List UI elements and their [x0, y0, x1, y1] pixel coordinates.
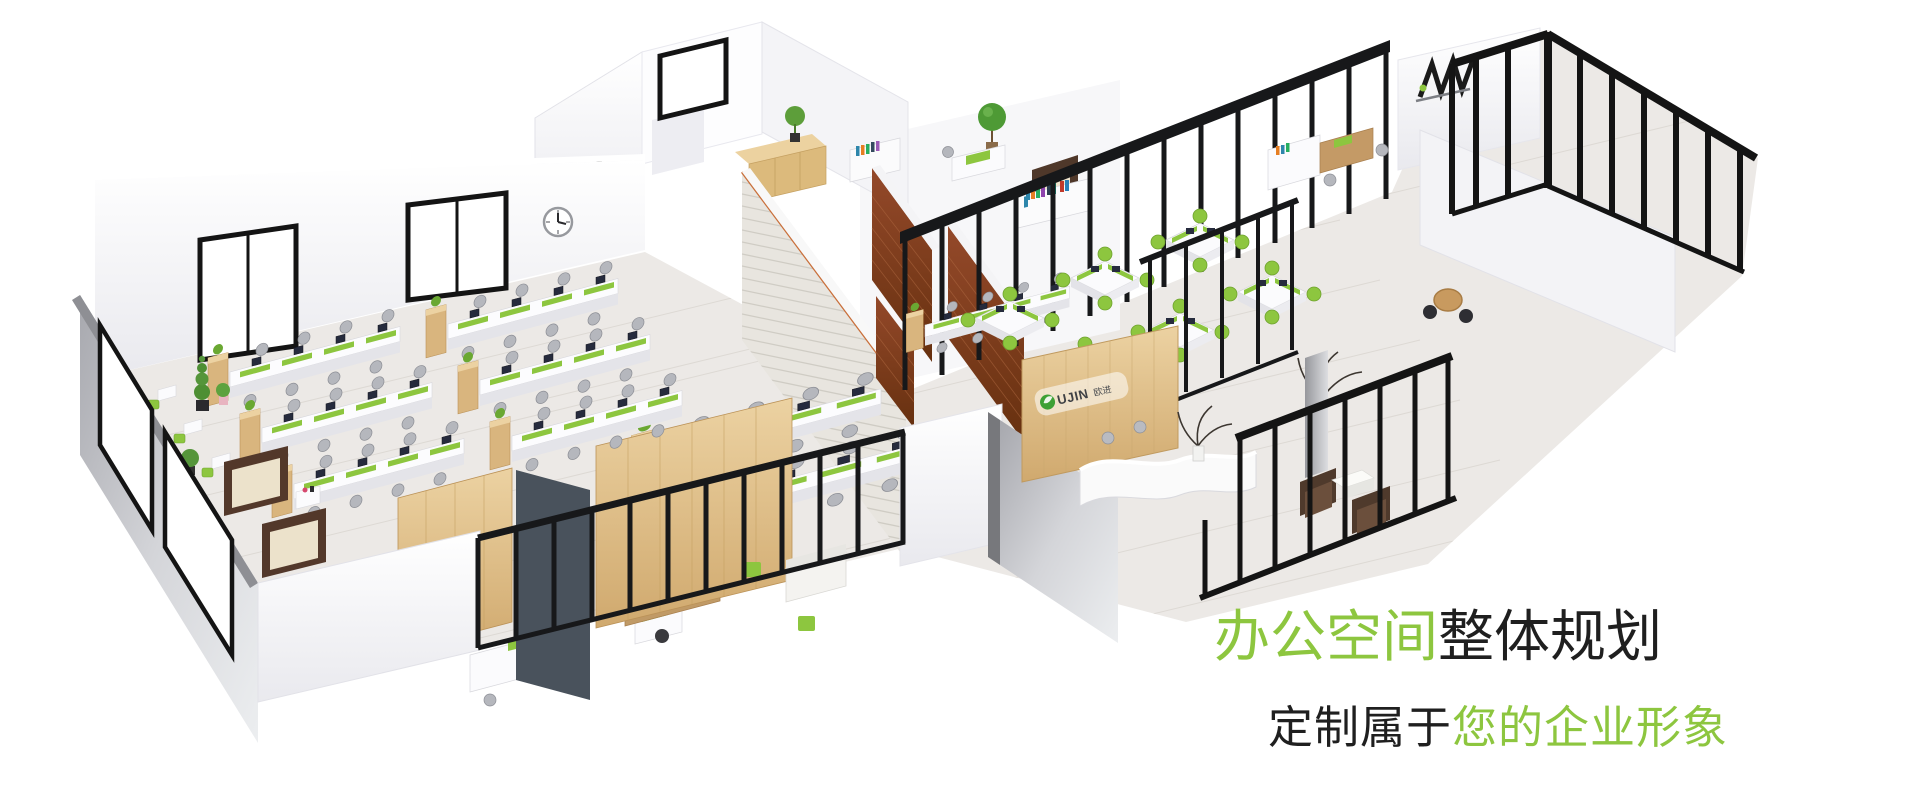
- window-1: [200, 226, 296, 360]
- headline-1-rest: 整体规划: [1438, 607, 1662, 669]
- headline-1-highlight: 办公空间: [1214, 607, 1438, 669]
- window-frame-top: [660, 40, 726, 118]
- wall-clock: [544, 208, 572, 236]
- headline-2-highlight: 您的企业形象: [1452, 703, 1728, 753]
- manager-desk: [1320, 128, 1388, 186]
- headline-line-2: 定制属于您的企业形象: [1268, 706, 1728, 751]
- headline-2-prefix: 定制属于: [1268, 703, 1452, 753]
- office-banner: UJIN 欧进: [0, 0, 1920, 800]
- office-floorplan-illustration: UJIN 欧进: [0, 0, 1920, 800]
- middle-outer-wall: [900, 404, 1002, 566]
- window-2: [408, 193, 506, 300]
- headline-line-1: 办公空间整体规划: [1214, 610, 1662, 666]
